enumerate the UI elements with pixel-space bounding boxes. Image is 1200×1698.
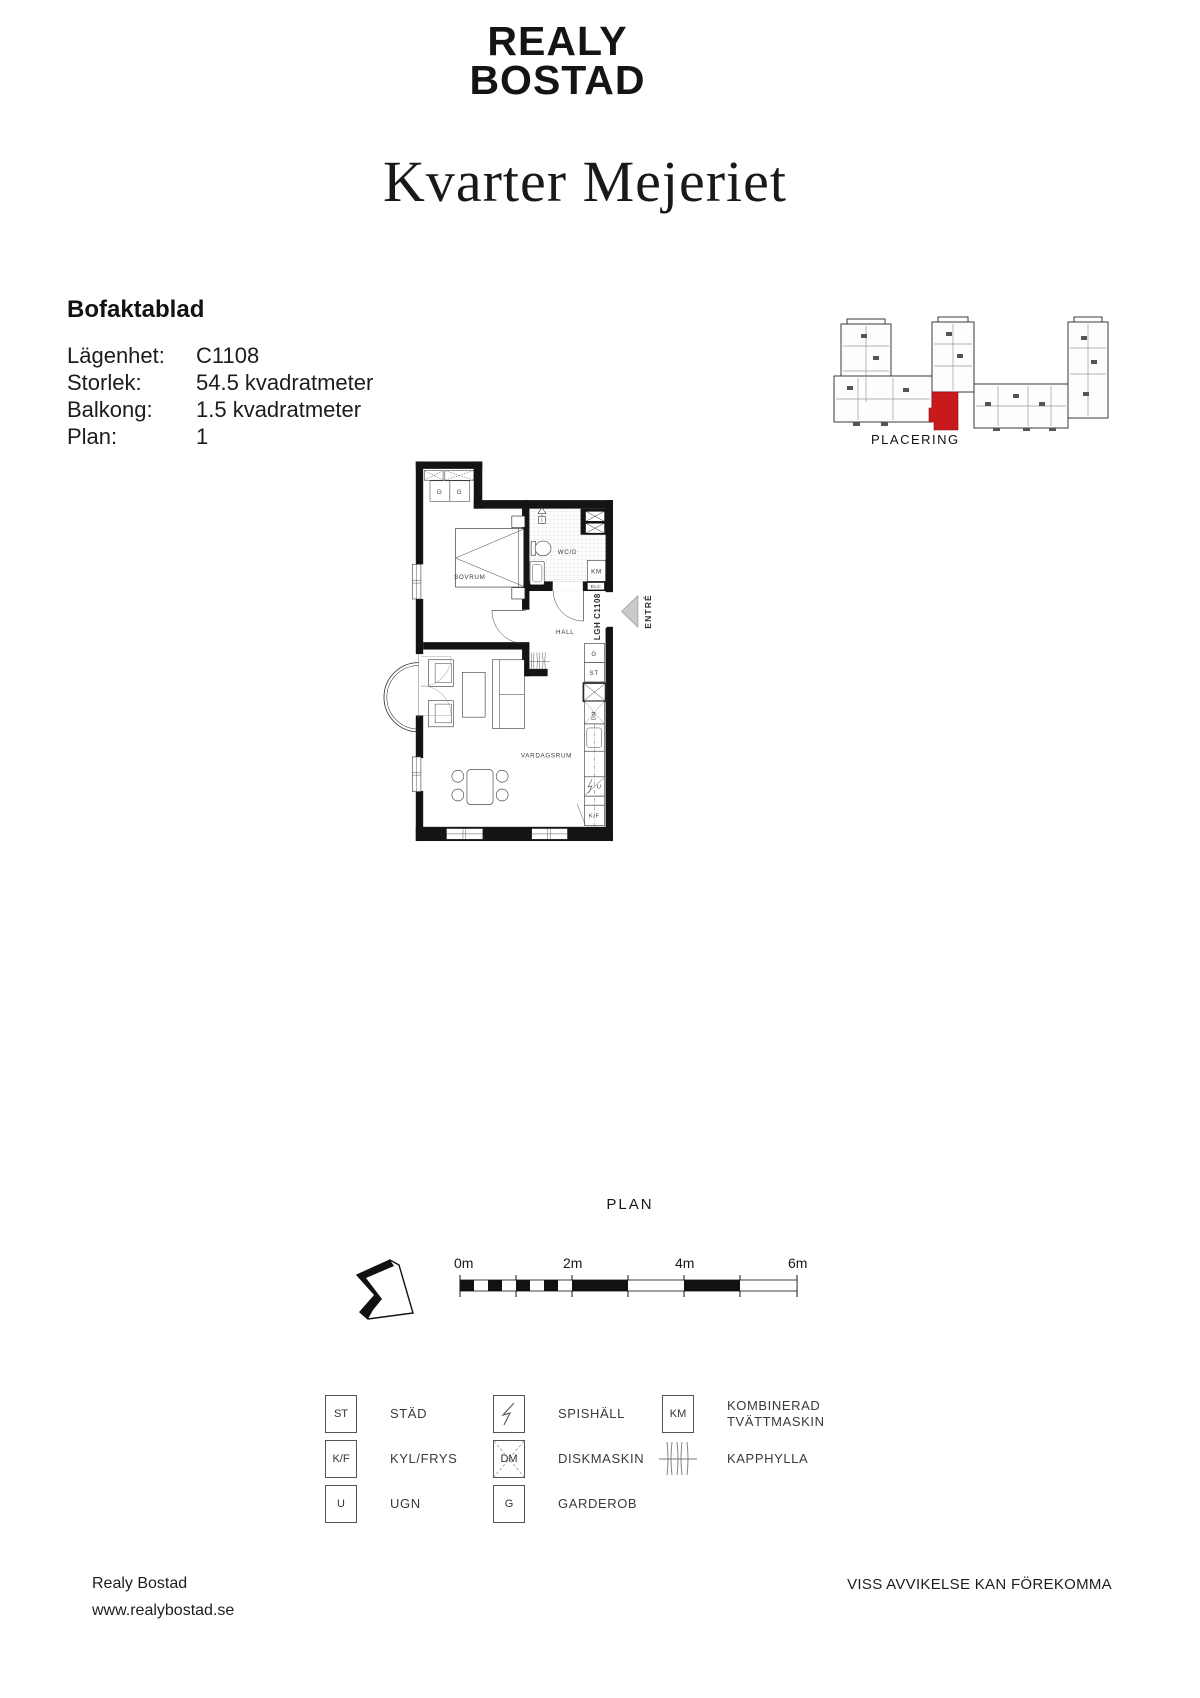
placement-minimap <box>833 316 1133 432</box>
fridge-symbol: K/F <box>325 1440 357 1478</box>
legend-label: KAPPHYLLA <box>727 1451 808 1467</box>
vent-shafts <box>585 511 605 534</box>
chair-icon <box>496 770 508 782</box>
company-logo: REALY BOSTAD <box>0 22 1115 100</box>
legend-label: UGN <box>390 1496 421 1512</box>
legend-label: DISKMASKIN <box>558 1451 644 1467</box>
fact-label: Storlek: <box>67 369 196 396</box>
legend-item-garderob: G <box>493 1485 525 1523</box>
wardrobe-symbol: G <box>493 1485 525 1523</box>
bedroom-door <box>492 610 526 644</box>
sofa-icon <box>493 660 525 729</box>
legend-item-kapphylla <box>659 1438 697 1483</box>
factsheet-row: Balkong: 1.5 kvadratmeter <box>67 396 427 423</box>
dishwasher-label: DM <box>591 711 597 720</box>
washer-label: KM <box>591 568 602 575</box>
nightstand <box>512 588 525 599</box>
page-title: Kvarter Mejeriet <box>0 148 1170 215</box>
legend-item-km: KM <box>662 1395 694 1433</box>
legend-label: SPISHÄLL <box>558 1406 625 1422</box>
hall-wardrobe-label: G <box>591 651 597 658</box>
oven-symbol: U <box>325 1485 357 1523</box>
legend-label: KOMBINERAD TVÄTTMASKIN <box>727 1398 823 1430</box>
placement-caption: PLACERING <box>871 432 960 447</box>
plan-caption: PLAN <box>560 1196 700 1213</box>
factsheet: Bofaktablad Lägenhet: C1108 Storlek: 54.… <box>67 296 427 450</box>
scale-tick-2: 2m <box>563 1255 582 1271</box>
dishwasher-symbol: DM <box>493 1440 525 1478</box>
legend-item-kylfrys: K/F <box>325 1440 357 1478</box>
logo-line-1: REALY <box>0 22 1115 61</box>
fact-label: Balkong: <box>67 396 196 423</box>
fridge-freezer-label: K/F <box>589 814 600 820</box>
legend-item-ugn: U <box>325 1485 357 1523</box>
bathroom-label: WC/D <box>558 549 577 556</box>
footer-company: Realy Bostad <box>92 1570 234 1597</box>
fact-value: 1 <box>196 423 208 450</box>
legend-item-stad: ST <box>325 1395 357 1433</box>
fact-label: Plan: <box>67 423 196 450</box>
toilet-icon <box>535 541 551 556</box>
entrance-label: ENTRÉ <box>642 594 653 629</box>
legend-label: STÄD <box>390 1406 427 1422</box>
hall-label: HALL <box>556 629 574 636</box>
legend-item-diskmaskin: DM <box>493 1440 525 1478</box>
chair-icon <box>496 789 508 801</box>
bedroom-closets <box>424 471 473 502</box>
bathroom-door <box>553 591 583 621</box>
washer-symbol: KM <box>662 1395 694 1433</box>
living-room-furniture <box>428 660 524 805</box>
cleaning-closet-label: ST <box>590 670 599 677</box>
oven-label: U <box>597 785 602 791</box>
wardrobe-label: G <box>437 489 443 496</box>
kapphylla-icon <box>659 1438 697 1478</box>
wc-door-opening <box>553 581 583 591</box>
electrical-label: ELC <box>591 584 601 590</box>
scale-tick-6: 6m <box>788 1255 807 1271</box>
wardrobe-label: G <box>457 489 463 496</box>
fact-value: C1108 <box>196 342 259 369</box>
north-arrow-icon <box>335 1252 430 1342</box>
factsheet-heading: Bofaktablad <box>67 296 427 324</box>
footer-company-block: Realy Bostad www.realybostad.se <box>92 1570 234 1624</box>
living-room-label: VARDAGSRUM <box>521 753 572 760</box>
chair-icon <box>452 789 464 801</box>
factsheet-row: Plan: 1 <box>67 423 427 450</box>
footer-disclaimer: VISS AVVIKELSE KAN FÖREKOMMA <box>847 1576 1112 1593</box>
scale-tick-0: 0m <box>454 1255 473 1271</box>
scale-bar: 0m 2m 4m 6m SKALA 1:100 <box>440 1248 820 1308</box>
highlighted-apartment <box>929 392 958 430</box>
unit-number-label: LGH C1108 <box>593 593 602 640</box>
spishall-icon <box>493 1395 525 1433</box>
coffee-table-icon <box>462 672 485 717</box>
bedroom-label: SOVRUM <box>454 574 486 581</box>
legend-label: GARDEROB <box>558 1496 637 1512</box>
fact-value: 54.5 kvadratmeter <box>196 369 373 396</box>
legend-item-spishall <box>493 1395 525 1433</box>
nightstand <box>512 516 525 527</box>
entrance-arrow-icon <box>621 596 637 628</box>
factsheet-row: Lägenhet: C1108 <box>67 342 427 369</box>
fact-value: 1.5 kvadratmeter <box>196 396 361 423</box>
bed-icon <box>456 516 525 599</box>
footer-website: www.realybostad.se <box>92 1597 234 1624</box>
legend-label: KYL/FRYS <box>390 1451 457 1467</box>
floorplan: ELC KM WC/D G G <box>380 420 880 1120</box>
logo-line-2: BOSTAD <box>0 61 1115 100</box>
scale-tick-4: 4m <box>675 1255 694 1271</box>
factsheet-row: Storlek: 54.5 kvadratmeter <box>67 369 427 396</box>
balcony <box>384 663 419 732</box>
fact-label: Lägenhet: <box>67 342 196 369</box>
coat-rack-icon <box>528 652 550 670</box>
chair-icon <box>452 770 464 782</box>
cleaning-symbol: ST <box>325 1395 357 1433</box>
dining-table-icon <box>467 769 493 804</box>
